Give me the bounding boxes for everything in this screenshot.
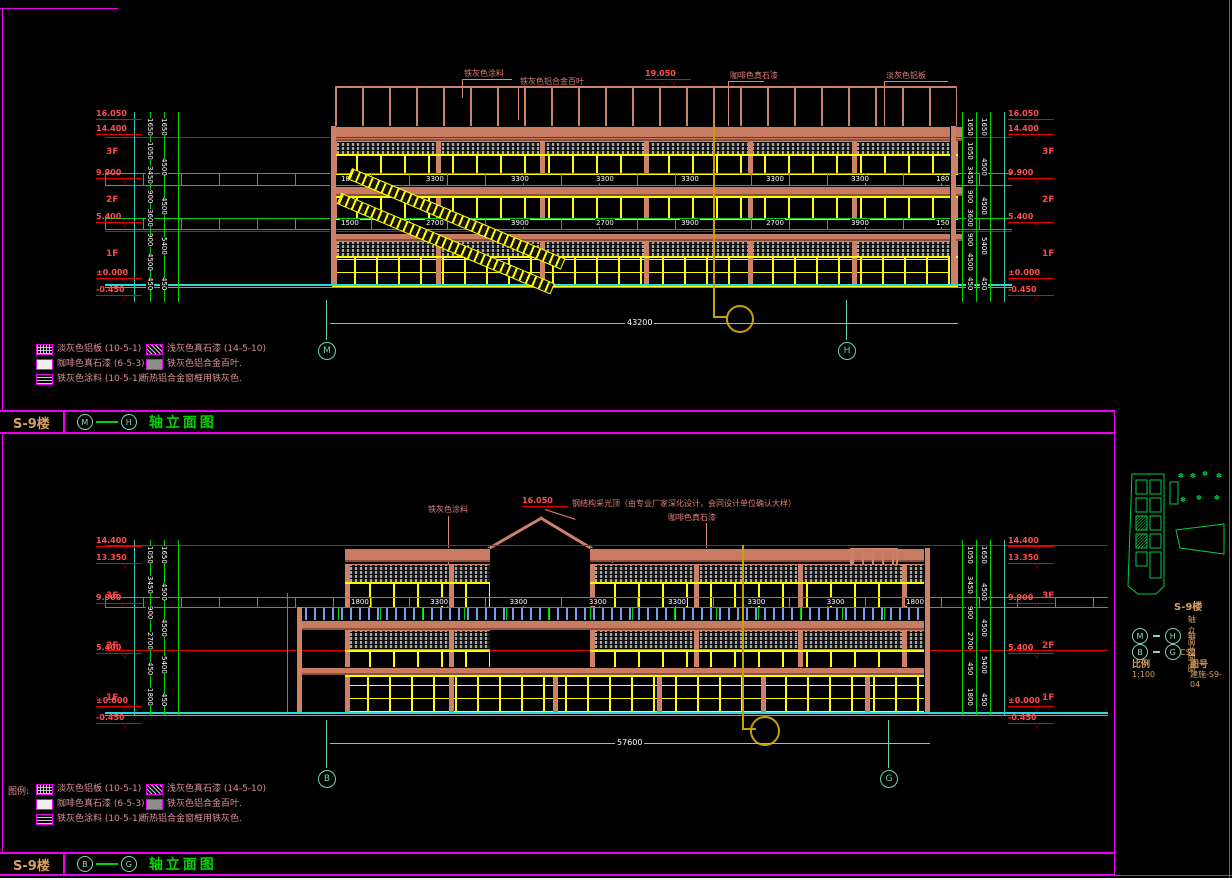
floor-label: 3F [1042, 592, 1054, 601]
dim-value: 1050 [146, 546, 154, 564]
scale-value: 1:100 [1132, 670, 1155, 679]
dim-value: 1650 [980, 546, 988, 564]
dim-value: 5400 [980, 656, 988, 674]
scale-cell: 比例 1:100 [1132, 660, 1155, 680]
elevation-marker: 14.400 [96, 537, 142, 547]
dim-col-line [976, 540, 977, 716]
elevation-drawing-bottom: 铁灰色涂料 咖啡色真石漆 钢结构采光顶（由专业厂家深化设计，会同设计单位确认大样… [0, 0, 1232, 878]
ground-line-salmon [105, 715, 1108, 716]
cad-viewport: { "colors":{"magenta":"#f000f0","salmon"… [0, 0, 1232, 878]
axis-dash [1153, 651, 1160, 653]
axis-bubble-from: B [77, 856, 93, 872]
edge-column-left [296, 607, 302, 712]
dim-value: 3300 [746, 598, 766, 606]
elevation-marker: 13.350 [96, 554, 142, 564]
elevation-marker: -0.450 [1008, 714, 1054, 724]
material-swatch [36, 814, 53, 825]
dim-value: 450 [160, 693, 168, 706]
edge-column-right [924, 548, 930, 712]
dim-value: 450 [966, 662, 974, 675]
roof-band-left-block [345, 548, 490, 562]
legend-item: 铁灰色铝合金百叶. [146, 799, 242, 810]
legend-label: 浅灰色真石漆 (14-5-10) [167, 784, 266, 795]
panel-band-2f-right [590, 630, 930, 650]
drawing-title: 轴立面图 [149, 854, 217, 874]
floor-label: 2F [106, 642, 118, 651]
titleblock-code: CS2 [1180, 648, 1196, 657]
dim-value: 450 [146, 662, 154, 675]
sheet-no-value: 建施-S9-04 [1190, 670, 1222, 689]
floor-label: 2F [1042, 642, 1054, 651]
svg-text:✽: ✽ [1180, 496, 1186, 504]
axis-bubble-to: G [121, 856, 137, 872]
dim-value: 2700 [146, 632, 154, 650]
axis-dash [96, 863, 118, 865]
dim-value: 3450 [966, 576, 974, 594]
roof-note: 钢结构采光顶（由专业厂家深化设计，会同设计单位确认大样） [572, 499, 796, 508]
elevation-marker: 14.400 [1008, 537, 1054, 547]
elevation-marker: 9.900 [96, 594, 142, 604]
dim-value: 1800 [146, 688, 154, 706]
panel-band-2f-left [345, 630, 490, 650]
svg-text:✽: ✽ [1216, 472, 1222, 480]
floor-label: 1F [106, 694, 118, 703]
callout-line-vertical [742, 545, 744, 730]
floor-label: 1F [1042, 694, 1054, 703]
legend-item: 浅灰色真石漆 (14-5-10) [146, 784, 266, 795]
peak-level-marker: 16.050 [522, 497, 568, 507]
dim-value: 1050 [966, 546, 974, 564]
scale-label: 比例 [1132, 660, 1155, 670]
elevation-marker: -0.450 [96, 714, 142, 724]
overall-dim-value: 57600 [615, 738, 644, 747]
svg-text:✽: ✽ [1196, 494, 1202, 502]
key-plan-svg: ✽✽✽✽ ✽✽✽ [1122, 468, 1230, 596]
vertical-dims-coarse-right: 1650450045005400450 [980, 546, 988, 706]
dim-value: 3300 [429, 598, 449, 606]
legend-label: 淡灰色铝板 (10-5-1) [57, 784, 141, 795]
axis-drop-right [888, 720, 889, 768]
dim-value: 1800 [966, 688, 974, 706]
legend-label: 铁灰色涂料 (10-5-1) [57, 814, 141, 825]
dim-col-line [178, 540, 179, 716]
sheet-no-cell: 图号 建施-S9-04 [1190, 660, 1228, 690]
floor-label: 3F [106, 592, 118, 601]
elevation-marker: 5.400 [96, 644, 142, 654]
horizontal-dims: 18003300330033003300330033001800 [350, 598, 925, 606]
dim-col-line [962, 540, 963, 716]
dim-value: 2700 [966, 632, 974, 650]
axis-bubble-left: B [318, 770, 336, 788]
dim-value: 1650 [160, 546, 168, 564]
svg-text:✽: ✽ [1202, 470, 1208, 478]
dim-value: 3300 [826, 598, 846, 606]
title-block: S-9楼 M H 轴立面图 B G 轴立面图 CS2 比例 1:100 图号 建… [1128, 598, 1228, 688]
project-label: S-9楼 [13, 855, 50, 874]
material-swatch [36, 799, 53, 810]
sheet-no-label: 图号 [1190, 660, 1228, 670]
axis-bubble-right: G [880, 770, 898, 788]
panel-band-3f-right [590, 564, 930, 584]
vertical-dims-coarse-left: 1650450045005400450 [160, 546, 168, 706]
axis-bubble-to: G [1165, 644, 1181, 660]
dim-value: 4500 [160, 583, 168, 601]
mini-dim-line [287, 593, 288, 712]
dim-value: 4500 [980, 583, 988, 601]
legend-label: 铁灰色铝合金百叶. [167, 799, 242, 810]
elevation-marker: 13.350 [1008, 554, 1054, 564]
title-bar-bottom: S-9楼 B G 轴立面图 [0, 852, 1114, 876]
dim-value: 1800 [905, 598, 925, 606]
dim-value: 3300 [667, 598, 687, 606]
material-swatch [146, 799, 163, 810]
detail-callout-circle [750, 716, 780, 746]
svg-text:✽: ✽ [1214, 494, 1220, 502]
dim-col-line [990, 540, 991, 716]
svg-text:✽: ✽ [1190, 472, 1196, 480]
divider [63, 854, 65, 874]
vertical-dims-fine-left: 1050345090027004501800 [146, 546, 154, 706]
legend-item: 淡灰色铝板 (10-5-1) [36, 784, 141, 795]
dim-value: 3450 [146, 576, 154, 594]
legend-label: 断热铝合金窗框用铁灰色. [140, 814, 242, 825]
axis-bubble-from: B [1132, 644, 1148, 660]
dim-value: 3300 [509, 598, 529, 606]
window-band-1f [345, 675, 930, 714]
level-line-red [105, 545, 1108, 546]
dim-value: 450 [980, 693, 988, 706]
elevation-marker: ±0.000 [96, 697, 142, 707]
beam-band-2f [296, 620, 930, 630]
vertical-dims-fine-right: 1050345090027004501800 [966, 546, 974, 706]
svg-text:✽: ✽ [1178, 472, 1184, 480]
legend-item: 铁灰色涂料 (10-5-1) [36, 814, 141, 825]
key-plan: ✽✽✽✽ ✽✽✽ [1122, 468, 1230, 596]
material-swatch [36, 784, 53, 795]
dim-col-line [1004, 540, 1005, 716]
legend-item: 咖啡色真石漆 (6-5-3) [36, 799, 145, 810]
dim-value: 900 [966, 606, 974, 619]
legend-label: 咖啡色真石漆 (6-5-3) [57, 799, 145, 810]
axis-drop-left [326, 720, 327, 768]
dim-value: 5400 [160, 656, 168, 674]
material-swatch [146, 784, 163, 795]
legend-item: 断热铝合金窗框用铁灰色. [140, 814, 242, 825]
titleblock-project: S-9楼 [1174, 598, 1202, 613]
dim-value: 900 [146, 606, 154, 619]
beam-band-1f [296, 667, 930, 675]
panel-band-3f-left [345, 564, 490, 584]
dim-value: 4500 [980, 619, 988, 637]
dim-value: 3300 [588, 598, 608, 606]
dim-value: 1800 [350, 598, 370, 606]
dim-col-line [134, 540, 135, 716]
material-annotation: 咖啡色真石漆 [668, 513, 716, 522]
material-annotation: 铁灰色涂料 [428, 505, 468, 514]
ground-line [105, 712, 1108, 714]
dim-value: 4500 [160, 619, 168, 637]
legend-bottom: 淡灰色铝板 (10-5-1) 浅灰色真石漆 (14-5-10) 咖啡色真石漆 (… [0, 784, 300, 830]
